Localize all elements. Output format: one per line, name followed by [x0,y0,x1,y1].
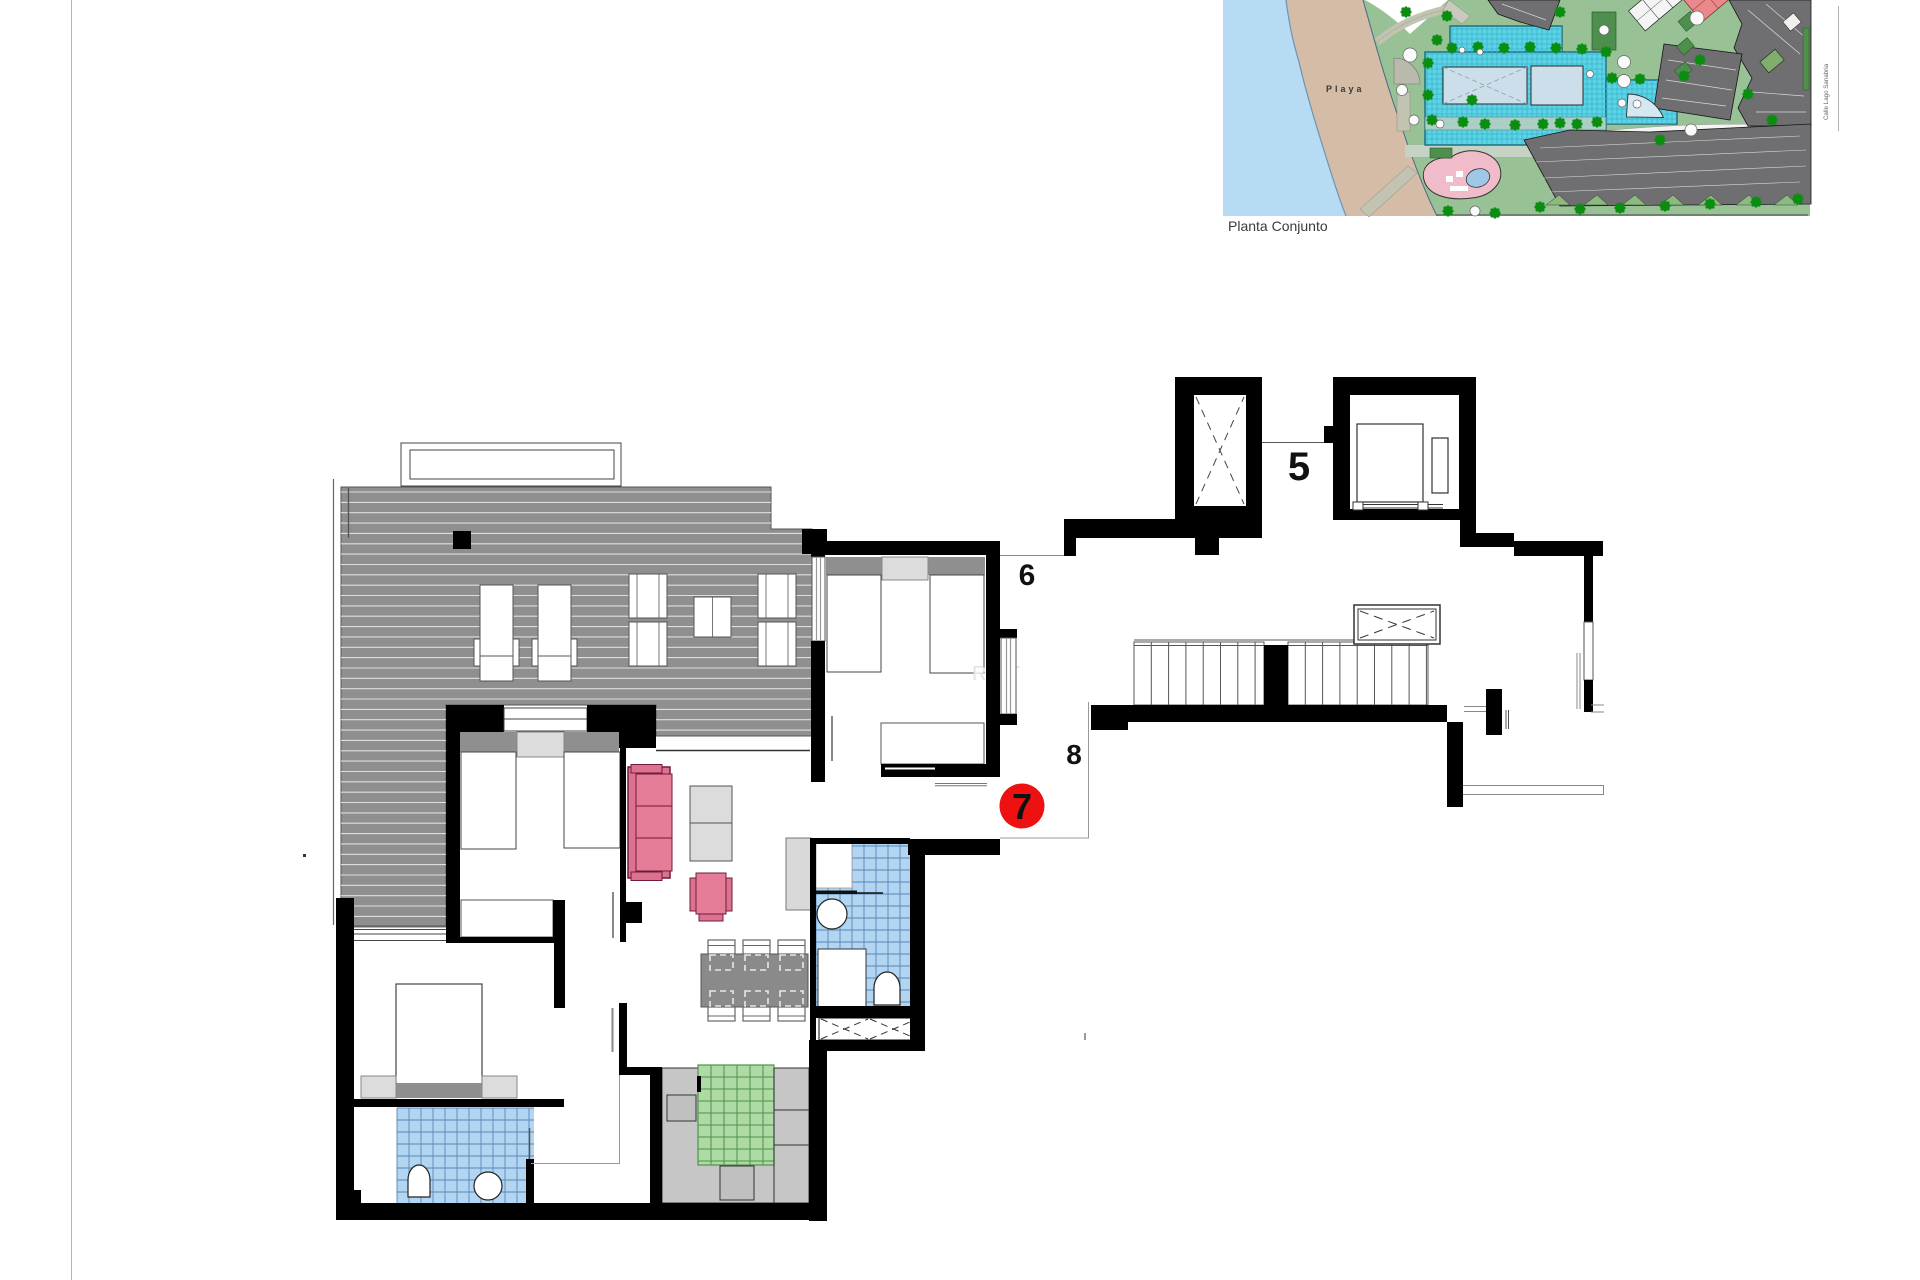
svg-text:8: 8 [1066,739,1082,770]
svg-text:5: 5 [1288,445,1310,489]
svg-text:7: 7 [1012,786,1032,827]
svg-text:Calle Lago Sanabria: Calle Lago Sanabria [1823,63,1830,120]
svg-text:Planta Conjunto: Planta Conjunto [1228,218,1328,234]
svg-text:Playa: Playa [1326,84,1365,94]
svg-text:6: 6 [1019,559,1036,592]
